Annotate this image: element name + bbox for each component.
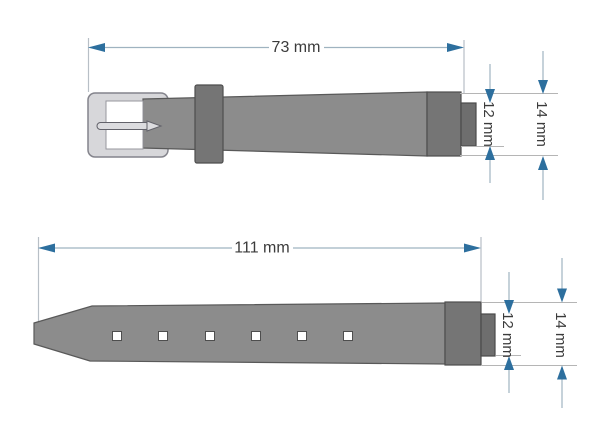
dim-arrow-up-icon [504,356,514,370]
top-lug-width-dimension: 12 mm [480,64,497,183]
bottom-strap-lug-stub [481,314,495,356]
bottom-strap-width-dimension: 14 mm [552,258,569,408]
dim-arrow-left-icon [38,244,55,253]
top-lug-width-label: 12 mm [480,101,497,147]
top-length-label: 73 mm [272,39,321,56]
bottom-strap-body [34,303,445,364]
strap-hole [344,332,353,341]
bottom-lug-width-label: 12 mm [499,312,516,358]
dim-arrow-up-icon [557,366,567,380]
dim-arrow-down-icon [557,289,567,303]
top-strap-width-label: 14 mm [533,101,550,147]
strap-keeper [195,85,223,163]
top-strap-end-cap [427,92,461,156]
top-strap-assembly: 73 mm 12 mm [88,38,558,200]
bottom-length-label: 111 mm [234,240,289,257]
strap-hole [206,332,215,341]
dim-arrow-right-icon [464,244,481,253]
dim-arrow-up-icon [485,146,495,160]
strap-hole [298,332,307,341]
bottom-strap-end-cap [445,302,481,365]
dim-arrow-left-icon [88,43,105,52]
top-strap-width-dimension: 14 mm [533,51,550,200]
buckle-prong [97,123,149,130]
top-strap-lug-stub [461,103,476,146]
dim-arrow-down-icon [538,80,548,94]
dim-arrow-up-icon [538,156,548,170]
bottom-lug-width-dimension: 12 mm [499,272,516,393]
dim-arrow-right-icon [447,43,464,52]
strap-hole [159,332,168,341]
top-length-dimension: 73 mm [88,38,464,94]
strap-hole [113,332,122,341]
top-strap-body [143,92,427,156]
bottom-strap-assembly: 111 mm 12 mm [34,237,577,408]
watch-strap-dimension-diagram: 73 mm 12 mm [0,0,600,431]
bottom-strap-width-label: 14 mm [552,312,569,358]
strap-hole [252,332,261,341]
